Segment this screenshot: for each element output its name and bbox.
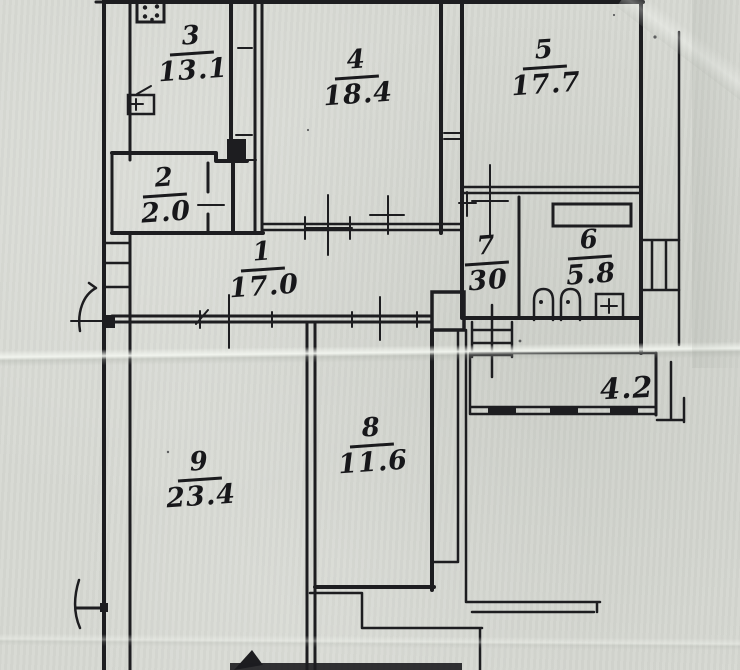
stove-icon [137,1,164,22]
stairs-icon [472,305,512,377]
sink-icon [128,86,154,114]
shelf-icon [553,204,631,226]
interior-walls [76,0,656,670]
exterior-and-main-walls [104,0,643,670]
toilet-icon [534,289,553,320]
ladder-icon [641,240,679,290]
floor-plan-drawing [0,0,740,670]
arrow-mark [230,650,462,670]
balcony-railing [488,408,638,414]
washbasin-icon [596,294,623,318]
entrance-arc-mark [75,283,96,628]
paper-right-shading [692,0,740,368]
wall-junction-blobs [100,139,246,612]
floor-plan-document: 1 17.0 2 2.0 3 13.1 4 18.4 5 17.7 6 5.8 … [0,0,740,670]
wall-pilaster [432,292,464,330]
toilet-icon [561,289,580,320]
